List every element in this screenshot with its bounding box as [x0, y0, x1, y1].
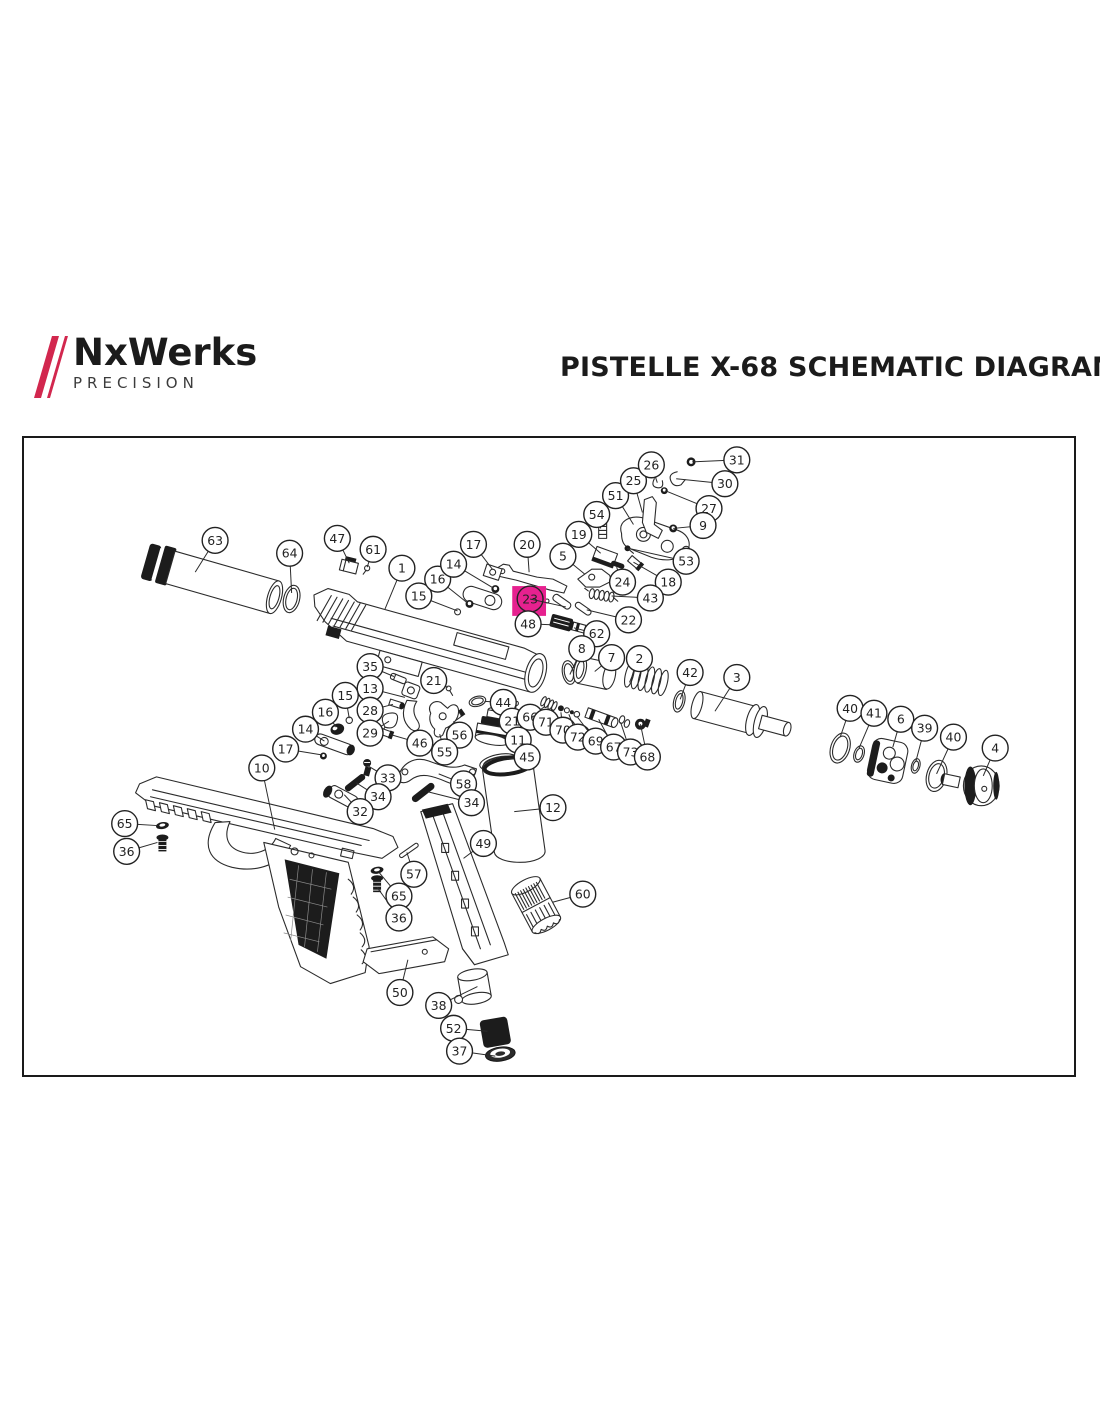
cup-part — [450, 967, 492, 1008]
screw36a-part — [156, 835, 168, 852]
callout-label-48: 48 — [520, 616, 536, 631]
callout-label-5: 5 — [559, 549, 567, 564]
callout-label-16: 16 — [430, 572, 446, 587]
callout-label-4: 4 — [991, 741, 999, 756]
callout-label-12: 12 — [545, 800, 561, 815]
callout-label-26: 26 — [643, 457, 659, 472]
callout-label-65: 65 — [391, 889, 407, 904]
callout-label-7: 7 — [608, 650, 616, 665]
callout-label-64: 64 — [282, 546, 298, 561]
callout-label-56: 56 — [452, 728, 468, 743]
callout-label-39: 39 — [917, 721, 933, 736]
callout-label-13: 13 — [362, 681, 378, 696]
callout-label-20: 20 — [519, 537, 535, 552]
callout-label-21: 21 — [426, 673, 442, 688]
schematic-diagram-frame: 6364476111516141720519545125263130279531… — [22, 436, 1076, 1077]
callout-label-58: 58 — [456, 776, 472, 791]
sight-part — [339, 555, 359, 574]
callout-label-24: 24 — [615, 575, 631, 590]
callout-label-10: 10 — [254, 760, 270, 775]
callout-label-6: 6 — [897, 712, 905, 727]
callout-label-15: 15 — [337, 688, 353, 703]
callout-label-23: 23 — [522, 591, 538, 606]
callout-label-18: 18 — [660, 575, 676, 590]
callout-label-61: 61 — [365, 542, 381, 557]
callout-label-29: 29 — [362, 726, 378, 741]
callout-label-51: 51 — [608, 488, 624, 503]
foam-part — [479, 1016, 511, 1048]
callout-label-42: 42 — [682, 665, 698, 680]
callout-label-37: 37 — [452, 1044, 468, 1059]
callout-label-40: 40 — [946, 730, 962, 745]
callout-label-16: 16 — [318, 705, 334, 720]
callout-label-17: 17 — [278, 742, 294, 757]
callout-label-50: 50 — [392, 985, 408, 1000]
callout-label-45: 45 — [519, 749, 535, 764]
brand-subtitle: PRECISION — [73, 374, 257, 392]
callout-label-43: 43 — [642, 590, 658, 605]
callout-label-63: 63 — [207, 533, 223, 548]
sight48-part — [549, 614, 573, 632]
callout-label-33: 33 — [380, 770, 396, 785]
screw36b-part — [371, 875, 383, 892]
callout-label-38: 38 — [431, 998, 447, 1013]
callout-label-9: 9 — [699, 518, 707, 533]
logo-slashes-icon — [30, 336, 68, 398]
callout-label-60: 60 — [575, 887, 591, 902]
schematic-canvas: 6364476111516141720519545125263130279531… — [24, 438, 1074, 1075]
callout-label-35: 35 — [362, 659, 378, 674]
callout-label-65: 65 — [117, 816, 133, 831]
callout-label-15: 15 — [411, 588, 427, 603]
callout-label-34: 34 — [464, 795, 480, 810]
callout-label-36: 36 — [391, 910, 407, 925]
callout-label-1: 1 — [398, 561, 406, 576]
callout-label-46: 46 — [412, 736, 428, 751]
callout-label-8: 8 — [578, 641, 586, 656]
washer37-part — [485, 1045, 516, 1063]
co2-knob-part — [509, 873, 563, 937]
callout-label-36: 36 — [119, 844, 135, 859]
callout-label-55: 55 — [437, 745, 453, 760]
callout-label-47: 47 — [329, 531, 345, 546]
callout-label-68: 68 — [639, 749, 655, 764]
callout-label-22: 22 — [621, 612, 637, 627]
callout-label-3: 3 — [733, 670, 741, 685]
callout-label-54: 54 — [589, 507, 605, 522]
pin61-part — [363, 566, 370, 575]
callout-label-30: 30 — [717, 476, 733, 491]
callout-label-32: 32 — [352, 804, 368, 819]
callout-label-25: 25 — [626, 473, 642, 488]
page-title: PISTELLE X-68 SCHEMATIC DIAGRAM — [560, 352, 1080, 383]
callout-label-44: 44 — [495, 695, 511, 710]
callout-label-53: 53 — [678, 554, 694, 569]
callout-label-14: 14 — [298, 722, 314, 737]
callout-label-2: 2 — [635, 651, 643, 666]
callout-label-41: 41 — [866, 706, 882, 721]
bolt-part — [688, 688, 795, 745]
callout-label-57: 57 — [406, 867, 422, 882]
callout-label-49: 49 — [476, 836, 492, 851]
valve-body-group-part — [826, 730, 999, 805]
callout-label-34: 34 — [370, 789, 386, 804]
brand-name: NxWerks — [73, 334, 257, 371]
callout-label-14: 14 — [446, 557, 462, 572]
piston4-part — [939, 766, 999, 806]
callout-label-28: 28 — [362, 703, 378, 718]
callout-label-40: 40 — [842, 701, 858, 716]
callout-label-17: 17 — [466, 537, 482, 552]
callout-label-19: 19 — [571, 527, 587, 542]
clip26-part — [653, 479, 663, 488]
brand-logo: NxWerks PRECISION — [30, 334, 257, 398]
callout-label-52: 52 — [446, 1021, 462, 1036]
callout-label-31: 31 — [729, 452, 745, 467]
